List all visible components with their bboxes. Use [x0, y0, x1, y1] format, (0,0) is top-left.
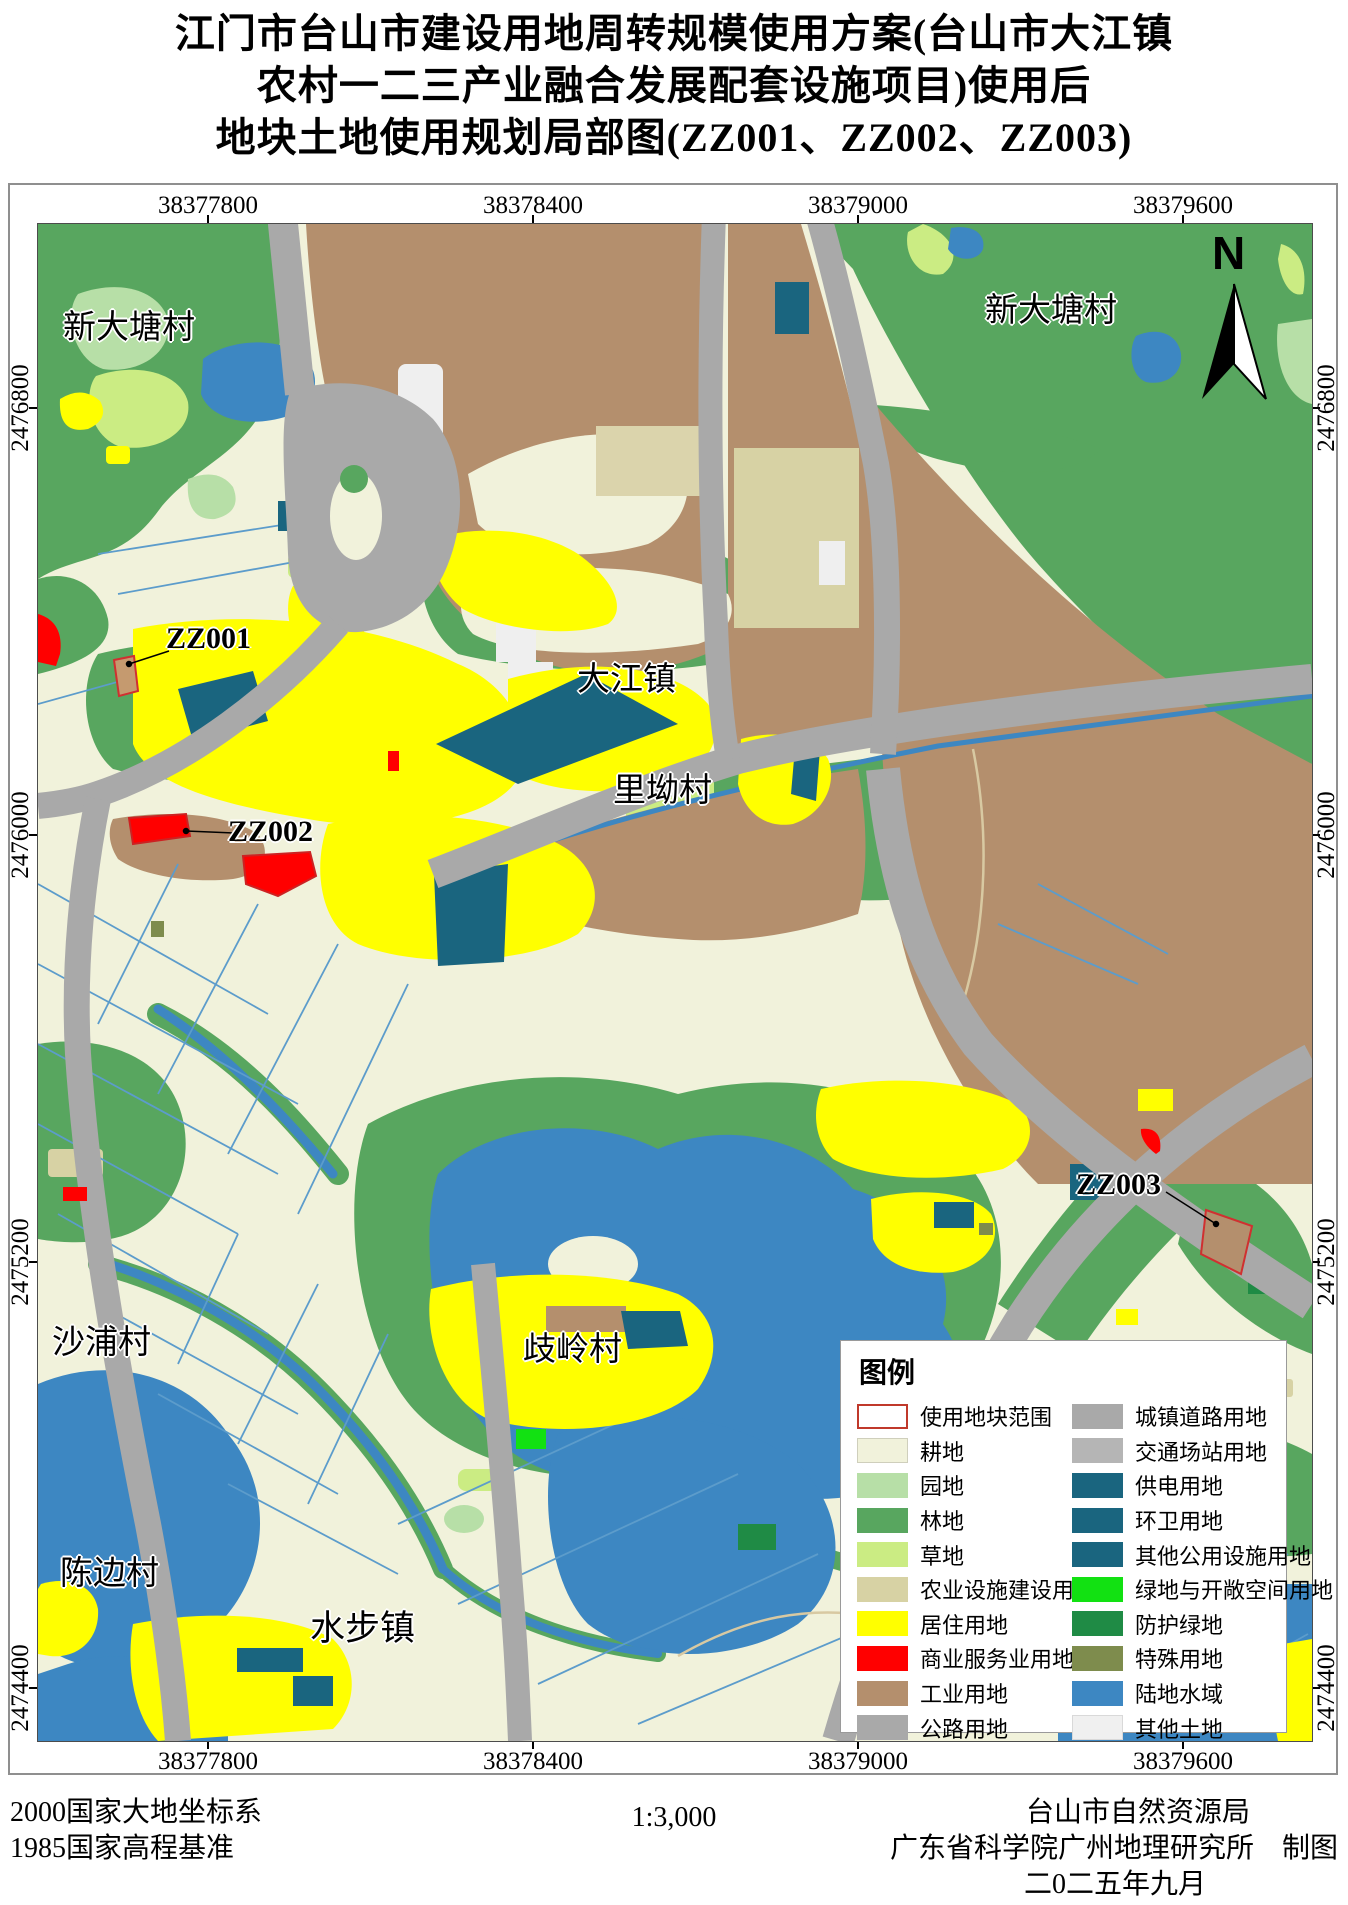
legend-label: 交通场站用地: [1135, 1435, 1267, 1467]
label-liao: 里坳村: [613, 763, 712, 811]
legend-swatch: [857, 1508, 908, 1533]
label-zz001: ZZ001: [166, 622, 251, 656]
legend-swatch: [857, 1646, 908, 1671]
legend-item: 农业设施建设用地: [857, 1572, 1072, 1607]
legend-item: 耕地: [857, 1434, 1072, 1469]
legend-swatch: [857, 1681, 908, 1706]
label-xindatang-right: 新大塘村: [985, 283, 1117, 331]
legend-label: 园地: [920, 1469, 964, 1501]
tick: [857, 215, 859, 223]
map-title-line3: 地块土地使用规划局部图(ZZ001、ZZ002、ZZ003): [0, 112, 1348, 164]
tick: [29, 407, 37, 409]
legend-columns: 使用地块范围耕地园地林地草地农业设施建设用地居住用地商业服务业用地工业用地公路用…: [857, 1399, 1286, 1745]
legend-swatch: [857, 1611, 908, 1636]
legend-swatch: [857, 1715, 908, 1740]
legend-label: 其他公用设施用地: [1135, 1539, 1311, 1571]
legend-label: 草地: [920, 1539, 964, 1571]
legend-label: 陆地水域: [1135, 1677, 1223, 1709]
legend-label: 使用地块范围: [920, 1400, 1052, 1432]
legend-item: 其他土地: [1072, 1710, 1333, 1745]
footer-datum-line2: 1985国家高程基准: [10, 1831, 262, 1867]
x-axis-label: 38377800: [138, 1748, 278, 1776]
tick: [29, 834, 37, 836]
tick: [207, 1741, 209, 1749]
legend-swatch: [1072, 1508, 1123, 1533]
tick: [29, 1261, 37, 1263]
footer-agency: 台山市自然资源局 广东省科学院广州地理研究所 制图 二0二五年九月: [890, 1795, 1338, 1903]
map-title: 江门市台山市建设用地周转规模使用方案(台山市大江镇 农村一二三产业融合发展配套设…: [0, 8, 1348, 164]
legend-label: 城镇道路用地: [1135, 1400, 1267, 1432]
legend-item: 使用地块范围: [857, 1399, 1072, 1434]
legend-swatch: [857, 1438, 908, 1463]
label-shuibu: 水步镇: [310, 1600, 415, 1651]
label-zz002: ZZ002: [228, 815, 313, 849]
tick: [1312, 1261, 1320, 1263]
legend-item: 特殊用地: [1072, 1641, 1333, 1676]
legend-column-right: 城镇道路用地交通场站用地供电用地环卫用地其他公用设施用地绿地与开敞空间用地防护绿…: [1072, 1399, 1333, 1745]
x-axis-label: 38379000: [788, 1748, 928, 1776]
open-space-green: [516, 1429, 546, 1449]
legend-item: 草地: [857, 1537, 1072, 1572]
x-axis-label: 38379600: [1113, 1748, 1253, 1776]
legend-swatch: [1072, 1646, 1123, 1671]
legend-label: 林地: [920, 1504, 964, 1536]
legend-swatch: [1072, 1473, 1123, 1498]
label-xindatang-left: 新大塘村: [63, 300, 195, 348]
tick: [532, 1741, 534, 1749]
legend-label: 居住用地: [920, 1608, 1008, 1640]
label-chenbian: 陈边村: [60, 1546, 159, 1594]
legend-label: 环卫用地: [1135, 1504, 1223, 1536]
label-shapu: 沙浦村: [52, 1315, 151, 1363]
legend-column-left: 使用地块范围耕地园地林地草地农业设施建设用地居住用地商业服务业用地工业用地公路用…: [857, 1399, 1072, 1745]
legend-label: 防护绿地: [1135, 1608, 1223, 1640]
legend-swatch: [1072, 1404, 1123, 1429]
north-label: N: [1212, 226, 1245, 280]
legend-item: 公路用地: [857, 1710, 1072, 1745]
footer-agency-line1: 台山市自然资源局: [890, 1795, 1338, 1831]
tick: [1312, 834, 1320, 836]
tick: [29, 1687, 37, 1689]
x-axis-label: 38378400: [463, 1748, 603, 1776]
legend-label: 农业设施建设用地: [920, 1573, 1096, 1605]
footer-date: 二0二五年九月: [890, 1867, 1338, 1903]
legend-panel: 图例 使用地块范围耕地园地林地草地农业设施建设用地居住用地商业服务业用地工业用地…: [840, 1340, 1287, 1733]
legend-item: 环卫用地: [1072, 1503, 1333, 1538]
legend-item: 其他公用设施用地: [1072, 1537, 1333, 1572]
legend-swatch: [1072, 1577, 1123, 1602]
legend-label: 特殊用地: [1135, 1642, 1223, 1674]
tick: [1182, 215, 1184, 223]
legend-label: 耕地: [920, 1435, 964, 1467]
footer-agency-line2: 广东省科学院广州地理研究所 制图: [890, 1831, 1338, 1867]
tick: [532, 215, 534, 223]
legend-label: 商业服务业用地: [920, 1642, 1074, 1674]
legend-item: 林地: [857, 1503, 1072, 1538]
map-title-line1: 江门市台山市建设用地周转规模使用方案(台山市大江镇: [0, 8, 1348, 60]
map-title-line2: 农村一二三产业融合发展配套设施项目)使用后: [0, 60, 1348, 112]
special-use: [151, 921, 164, 937]
legend-swatch: [857, 1577, 908, 1602]
legend-swatch: [857, 1404, 908, 1429]
legend-item: 居住用地: [857, 1607, 1072, 1642]
legend-title: 图例: [859, 1351, 1286, 1391]
legend-label: 其他土地: [1135, 1712, 1223, 1744]
page: 江门市台山市建设用地周转规模使用方案(台山市大江镇 农村一二三产业融合发展配套设…: [0, 0, 1348, 1905]
tick: [207, 215, 209, 223]
legend-label: 供电用地: [1135, 1469, 1223, 1501]
legend-item: 供电用地: [1072, 1468, 1333, 1503]
special-use: [979, 1223, 993, 1235]
legend-swatch: [857, 1473, 908, 1498]
legend-item: 绿地与开敞空间用地: [1072, 1572, 1333, 1607]
legend-item: 陆地水域: [1072, 1676, 1333, 1711]
legend-item: 交通场站用地: [1072, 1434, 1333, 1469]
label-dajiang: 大江镇: [577, 652, 676, 700]
legend-swatch: [1072, 1681, 1123, 1706]
legend-item: 商业服务业用地: [857, 1641, 1072, 1676]
legend-label: 绿地与开敞空间用地: [1135, 1573, 1333, 1605]
legend-item: 园地: [857, 1468, 1072, 1503]
label-zz003: ZZ003: [1076, 1168, 1161, 1202]
legend-label: 公路用地: [920, 1712, 1008, 1744]
legend-item: 防护绿地: [1072, 1607, 1333, 1642]
legend-swatch: [1072, 1715, 1123, 1740]
legend-label: 工业用地: [920, 1677, 1008, 1709]
label-qiling: 歧岭村: [523, 1322, 622, 1370]
tick: [1312, 407, 1320, 409]
legend-item: 城镇道路用地: [1072, 1399, 1333, 1434]
legend-item: 工业用地: [857, 1676, 1072, 1711]
legend-swatch: [857, 1542, 908, 1567]
legend-swatch: [1072, 1542, 1123, 1567]
legend-swatch: [1072, 1438, 1123, 1463]
protective-green: [738, 1524, 776, 1550]
legend-swatch: [1072, 1611, 1123, 1636]
